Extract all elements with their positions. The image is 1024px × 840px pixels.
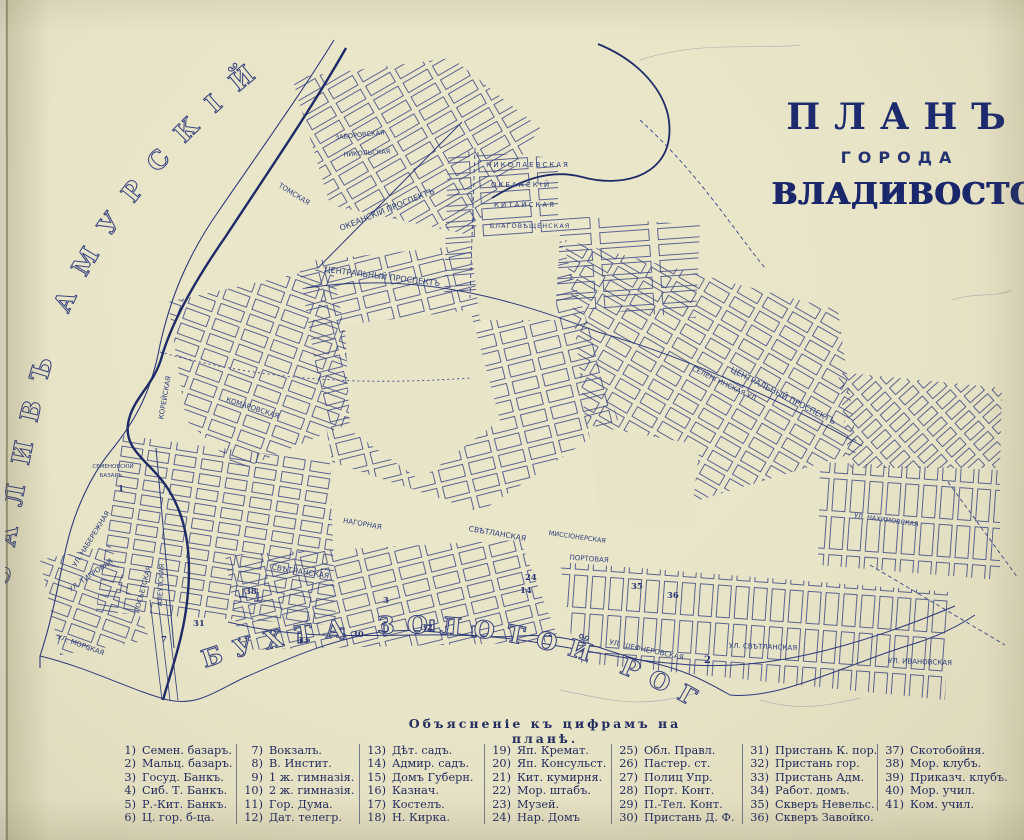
- street-label: СЕМЕНОВСКІЙ: [92, 463, 133, 470]
- legend-item: 7)Вокзалъ.: [241, 744, 353, 757]
- legend-item-label: Пристань Адм.: [775, 771, 864, 784]
- street-label: МИССІОНЕРСКАЯ: [548, 529, 606, 545]
- legend-item-number: 12): [241, 811, 263, 824]
- legend-item-number: 34): [747, 784, 769, 797]
- legend-item: 1)Семен. базаръ.: [114, 744, 230, 757]
- legend-item: 35)Скверъ Невельс.: [747, 798, 871, 811]
- legend-item-number: 1): [114, 744, 136, 757]
- map-marker: 30: [352, 630, 364, 640]
- title-city-name: ВЛАДИВОСТОКА: [772, 177, 1020, 212]
- legend-item: 2)Мальц. базаръ.: [114, 757, 230, 770]
- legend-item: 20)Яп. Консульст.: [489, 757, 605, 770]
- legend-item-label: Казнач.: [392, 784, 439, 797]
- legend-item-number: 14): [364, 757, 386, 770]
- legend-item-label: Полиц Упр.: [644, 771, 713, 784]
- legend-item-number: 37): [882, 744, 904, 757]
- legend-item: 5)Р.-Кит. Банкъ.: [114, 798, 230, 811]
- legend-item-label: Гор. Дума.: [269, 798, 333, 811]
- legend-item-number: 28): [616, 784, 638, 797]
- legend-item-number: 18): [364, 811, 386, 824]
- legend-item: 22)Мор. штабъ.: [489, 784, 605, 797]
- street-label: КИТАЙСКАЯ: [494, 200, 556, 209]
- map-title-block: ПЛАНЪ ГОРОДА ВЛАДИВОСТОКА: [772, 96, 1020, 212]
- street-label: ПОРТОВАЯ: [569, 554, 609, 565]
- map-marker: 35: [631, 582, 643, 592]
- legend-item-number: 6): [114, 811, 136, 824]
- legend-item-number: 23): [489, 798, 511, 811]
- legend-column: 19)Яп. Кремат. 20)Яп. Консульст. 21)Кит.…: [484, 744, 611, 824]
- legend-item-label: Мор. учил.: [910, 784, 975, 797]
- legend-item-label: Нар. Домъ: [517, 811, 580, 824]
- legend-column: 13)Дѣт. садъ. 14)Адмир. садъ. 15)Домъ Гу…: [359, 744, 484, 824]
- legend-item-number: 25): [616, 744, 638, 757]
- legend-item-label: Домъ Губерн.: [392, 771, 474, 784]
- map-marker: 3: [383, 596, 389, 606]
- legend-column: 31)Пристань К. пор. 32)Пристань гор. 33)…: [742, 744, 877, 824]
- legend-item: 28)Порт. Конт.: [616, 784, 736, 797]
- map-marker: 7: [161, 635, 167, 645]
- legend-item: 25)Обл. Правл.: [616, 744, 736, 757]
- legend-item-label: Приказч. клубъ.: [910, 771, 1008, 784]
- map-marker: 2: [704, 655, 711, 666]
- legend-item: 15)Домъ Губерн.: [364, 771, 478, 784]
- legend-item: 17)Костелъ.: [364, 798, 478, 811]
- legend-item-label: 2 ж. гимназія.: [269, 784, 354, 797]
- legend-item: 34)Работ. домъ.: [747, 784, 871, 797]
- legend-item: 31)Пристань К. пор.: [747, 744, 871, 757]
- legend-item-number: 9): [241, 771, 263, 784]
- legend-item-number: 5): [114, 798, 136, 811]
- legend-item: 21)Кит. кумирня.: [489, 771, 605, 784]
- legend-item-label: Работ. домъ.: [775, 784, 850, 797]
- legend-item-label: Мальц. базаръ.: [142, 757, 233, 770]
- legend-item: 13)Дѣт. садъ.: [364, 744, 478, 757]
- legend-item-number: 3): [114, 771, 136, 784]
- legend-item: 16)Казнач.: [364, 784, 478, 797]
- street-label: ОКЕАНСКІЙ: [491, 180, 551, 189]
- title-plan: ПЛАНЪ: [772, 96, 1020, 138]
- legend-item: 10)2 ж. гимназія.: [241, 784, 353, 797]
- legend-item-label: П.-Тел. Конт.: [644, 798, 723, 811]
- legend-item-label: Вокзалъ.: [269, 744, 322, 757]
- street-label: БАЗАРЪ: [100, 473, 123, 479]
- legend-item-number: 20): [489, 757, 511, 770]
- legend-item: 12)Дат. телегр.: [241, 811, 353, 824]
- legend-column: 25)Обл. Правл. 26)Пастер. ст. 27)Полиц У…: [611, 744, 742, 824]
- legend-item-label: В. Инстит.: [269, 757, 332, 770]
- legend-item: 41)Ком. учил.: [882, 798, 992, 811]
- map-scan-page: ЗАЛИВЪ АМУРСКІЙ БУХТА ЗОЛОТОЙ РОГЪ ОКЕАН…: [0, 0, 1024, 840]
- legend-item-label: Порт. Конт.: [644, 784, 714, 797]
- legend-item-number: 19): [489, 744, 511, 757]
- legend-item-number: 27): [616, 771, 638, 784]
- legend-item-label: Дѣт. садъ.: [392, 744, 452, 757]
- legend-item-label: Дат. телегр.: [269, 811, 342, 824]
- legend-item: 18)Н. Кирка.: [364, 811, 478, 824]
- map-marker: 33: [297, 636, 309, 646]
- legend-item: 8)В. Инстит.: [241, 757, 353, 770]
- legend-item: 38)Мор. клубъ.: [882, 757, 992, 770]
- legend-heading: Объясненіе къ цифрамъ на планѣ.: [380, 716, 710, 746]
- legend-item: 4)Сиб. Т. Банкъ.: [114, 784, 230, 797]
- street-label: СВѢТЛАНСКАЯ: [468, 524, 527, 543]
- legend-item-number: 21): [489, 771, 511, 784]
- legend-item-number: 11): [241, 798, 263, 811]
- legend-item-label: Пастер. ст.: [644, 757, 710, 770]
- legend-item-label: Музей.: [517, 798, 559, 811]
- legend-item-number: 30): [616, 811, 638, 824]
- legend-item: 19)Яп. Кремат.: [489, 744, 605, 757]
- legend-item-label: Сиб. Т. Банкъ.: [142, 784, 227, 797]
- legend-item-label: Скотобойня.: [910, 744, 985, 757]
- legend-item: 23)Музей.: [489, 798, 605, 811]
- legend-item-number: 33): [747, 771, 769, 784]
- legend-item: 26)Пастер. ст.: [616, 757, 736, 770]
- legend-item-label: Скверъ Завойко.: [775, 811, 874, 824]
- legend-item: 14)Адмир. садъ.: [364, 757, 478, 770]
- legend-item-label: Кит. кумирня.: [517, 771, 602, 784]
- legend-item-number: 22): [489, 784, 511, 797]
- map-marker: 31: [193, 619, 205, 629]
- legend-item-number: 26): [616, 757, 638, 770]
- legend-item-number: 32): [747, 757, 769, 770]
- map-marker: 36: [667, 591, 679, 601]
- legend-item: 3)Госуд. Банкъ.: [114, 771, 230, 784]
- legend-item: 6)Ц. гор. б-ца.: [114, 811, 230, 824]
- legend-item-number: 29): [616, 798, 638, 811]
- legend-item: 32)Пристань гор.: [747, 757, 871, 770]
- street-label: ТОМСКАЯ: [276, 181, 311, 207]
- street-label: НИКОЛАЕВСКАЯ: [486, 161, 570, 169]
- legend-item-label: Адмир. садъ.: [392, 757, 469, 770]
- legend-item-label: Пристань гор.: [775, 757, 860, 770]
- street-label: БЛАГОВѢЩЕНСКАЯ: [490, 222, 571, 230]
- legend-item-label: Н. Кирка.: [392, 811, 450, 824]
- legend-item-label: Пристань Д. Ф.: [644, 811, 735, 824]
- legend-item: 24)Нар. Домъ: [489, 811, 605, 824]
- legend-item-label: Ком. учил.: [910, 798, 974, 811]
- legend-item-number: 24): [489, 811, 511, 824]
- legend-item-number: 41): [882, 798, 904, 811]
- legend-item-label: Мор. штабъ.: [517, 784, 591, 797]
- legend-item-number: 31): [747, 744, 769, 757]
- legend-item-label: Пристань К. пор.: [775, 744, 877, 757]
- map-marker: 24: [525, 573, 537, 583]
- legend-item-number: 15): [364, 771, 386, 784]
- legend-item-label: Обл. Правл.: [644, 744, 715, 757]
- legend-item-number: 16): [364, 784, 386, 797]
- legend-item-label: Мор. клубъ.: [910, 757, 981, 770]
- legend-columns: 1)Семен. базаръ. 2)Мальц. базаръ. 3)Госу…: [110, 744, 998, 824]
- legend-item-number: 40): [882, 784, 904, 797]
- legend-item-number: 2): [114, 757, 136, 770]
- legend-item-number: 36): [747, 811, 769, 824]
- legend-item-label: Яп. Кремат.: [517, 744, 589, 757]
- legend-item: 11)Гор. Дума.: [241, 798, 353, 811]
- map-marker: 14: [520, 586, 532, 596]
- legend-item-label: Госуд. Банкъ.: [142, 771, 224, 784]
- legend-item-number: 7): [241, 744, 263, 757]
- legend-item: 40)Мор. учил.: [882, 784, 992, 797]
- legend-item: 36)Скверъ Завойко.: [747, 811, 871, 824]
- legend-item: 33)Пристань Адм.: [747, 771, 871, 784]
- map-marker: 1: [118, 484, 124, 494]
- legend-column: 37)Скотобойня. 38)Мор. клубъ. 39)Приказч…: [877, 744, 998, 811]
- legend-item: 30)Пристань Д. Ф.: [616, 811, 736, 824]
- legend-item: 29)П.-Тел. Конт.: [616, 798, 736, 811]
- legend-item-label: Ц. гор. б-ца.: [142, 811, 214, 824]
- legend-item-label: Скверъ Невельс.: [775, 798, 875, 811]
- legend-item-number: 10): [241, 784, 263, 797]
- legend-item-number: 17): [364, 798, 386, 811]
- legend-item: 9)1 ж. гимназія.: [241, 771, 353, 784]
- legend-item-number: 13): [364, 744, 386, 757]
- street-label: КОРЕЙСКАЯ: [156, 375, 173, 420]
- legend-column: 1)Семен. базаръ. 2)Мальц. базаръ. 3)Госу…: [110, 744, 236, 824]
- legend-item: 37)Скотобойня.: [882, 744, 992, 757]
- legend-item-number: 35): [747, 798, 769, 811]
- title-goroda: ГОРОДА: [772, 148, 1020, 167]
- legend-item: 27)Полиц Упр.: [616, 771, 736, 784]
- legend-item-label: Яп. Консульст.: [517, 757, 606, 770]
- legend-item: 39)Приказч. клубъ.: [882, 771, 992, 784]
- street-label: НАГОРНАЯ: [342, 517, 382, 532]
- legend-column: 7)Вокзалъ. 8)В. Инстит. 9)1 ж. гимназія.…: [236, 744, 359, 824]
- map-marker: 32: [421, 623, 433, 633]
- legend-item-label: 1 ж. гимназія.: [269, 771, 354, 784]
- legend-item-label: Костелъ.: [392, 798, 445, 811]
- legend-item-number: 4): [114, 784, 136, 797]
- scan-page-edge: [0, 0, 5, 840]
- legend-item-label: Семен. базаръ.: [142, 744, 232, 757]
- legend-item-number: 38): [882, 757, 904, 770]
- legend-item-number: 8): [241, 757, 263, 770]
- map-marker: 38: [245, 587, 257, 597]
- scan-crease-line: [6, 0, 8, 840]
- legend-item-number: 39): [882, 771, 904, 784]
- legend-item-label: Р.-Кит. Банкъ.: [142, 798, 227, 811]
